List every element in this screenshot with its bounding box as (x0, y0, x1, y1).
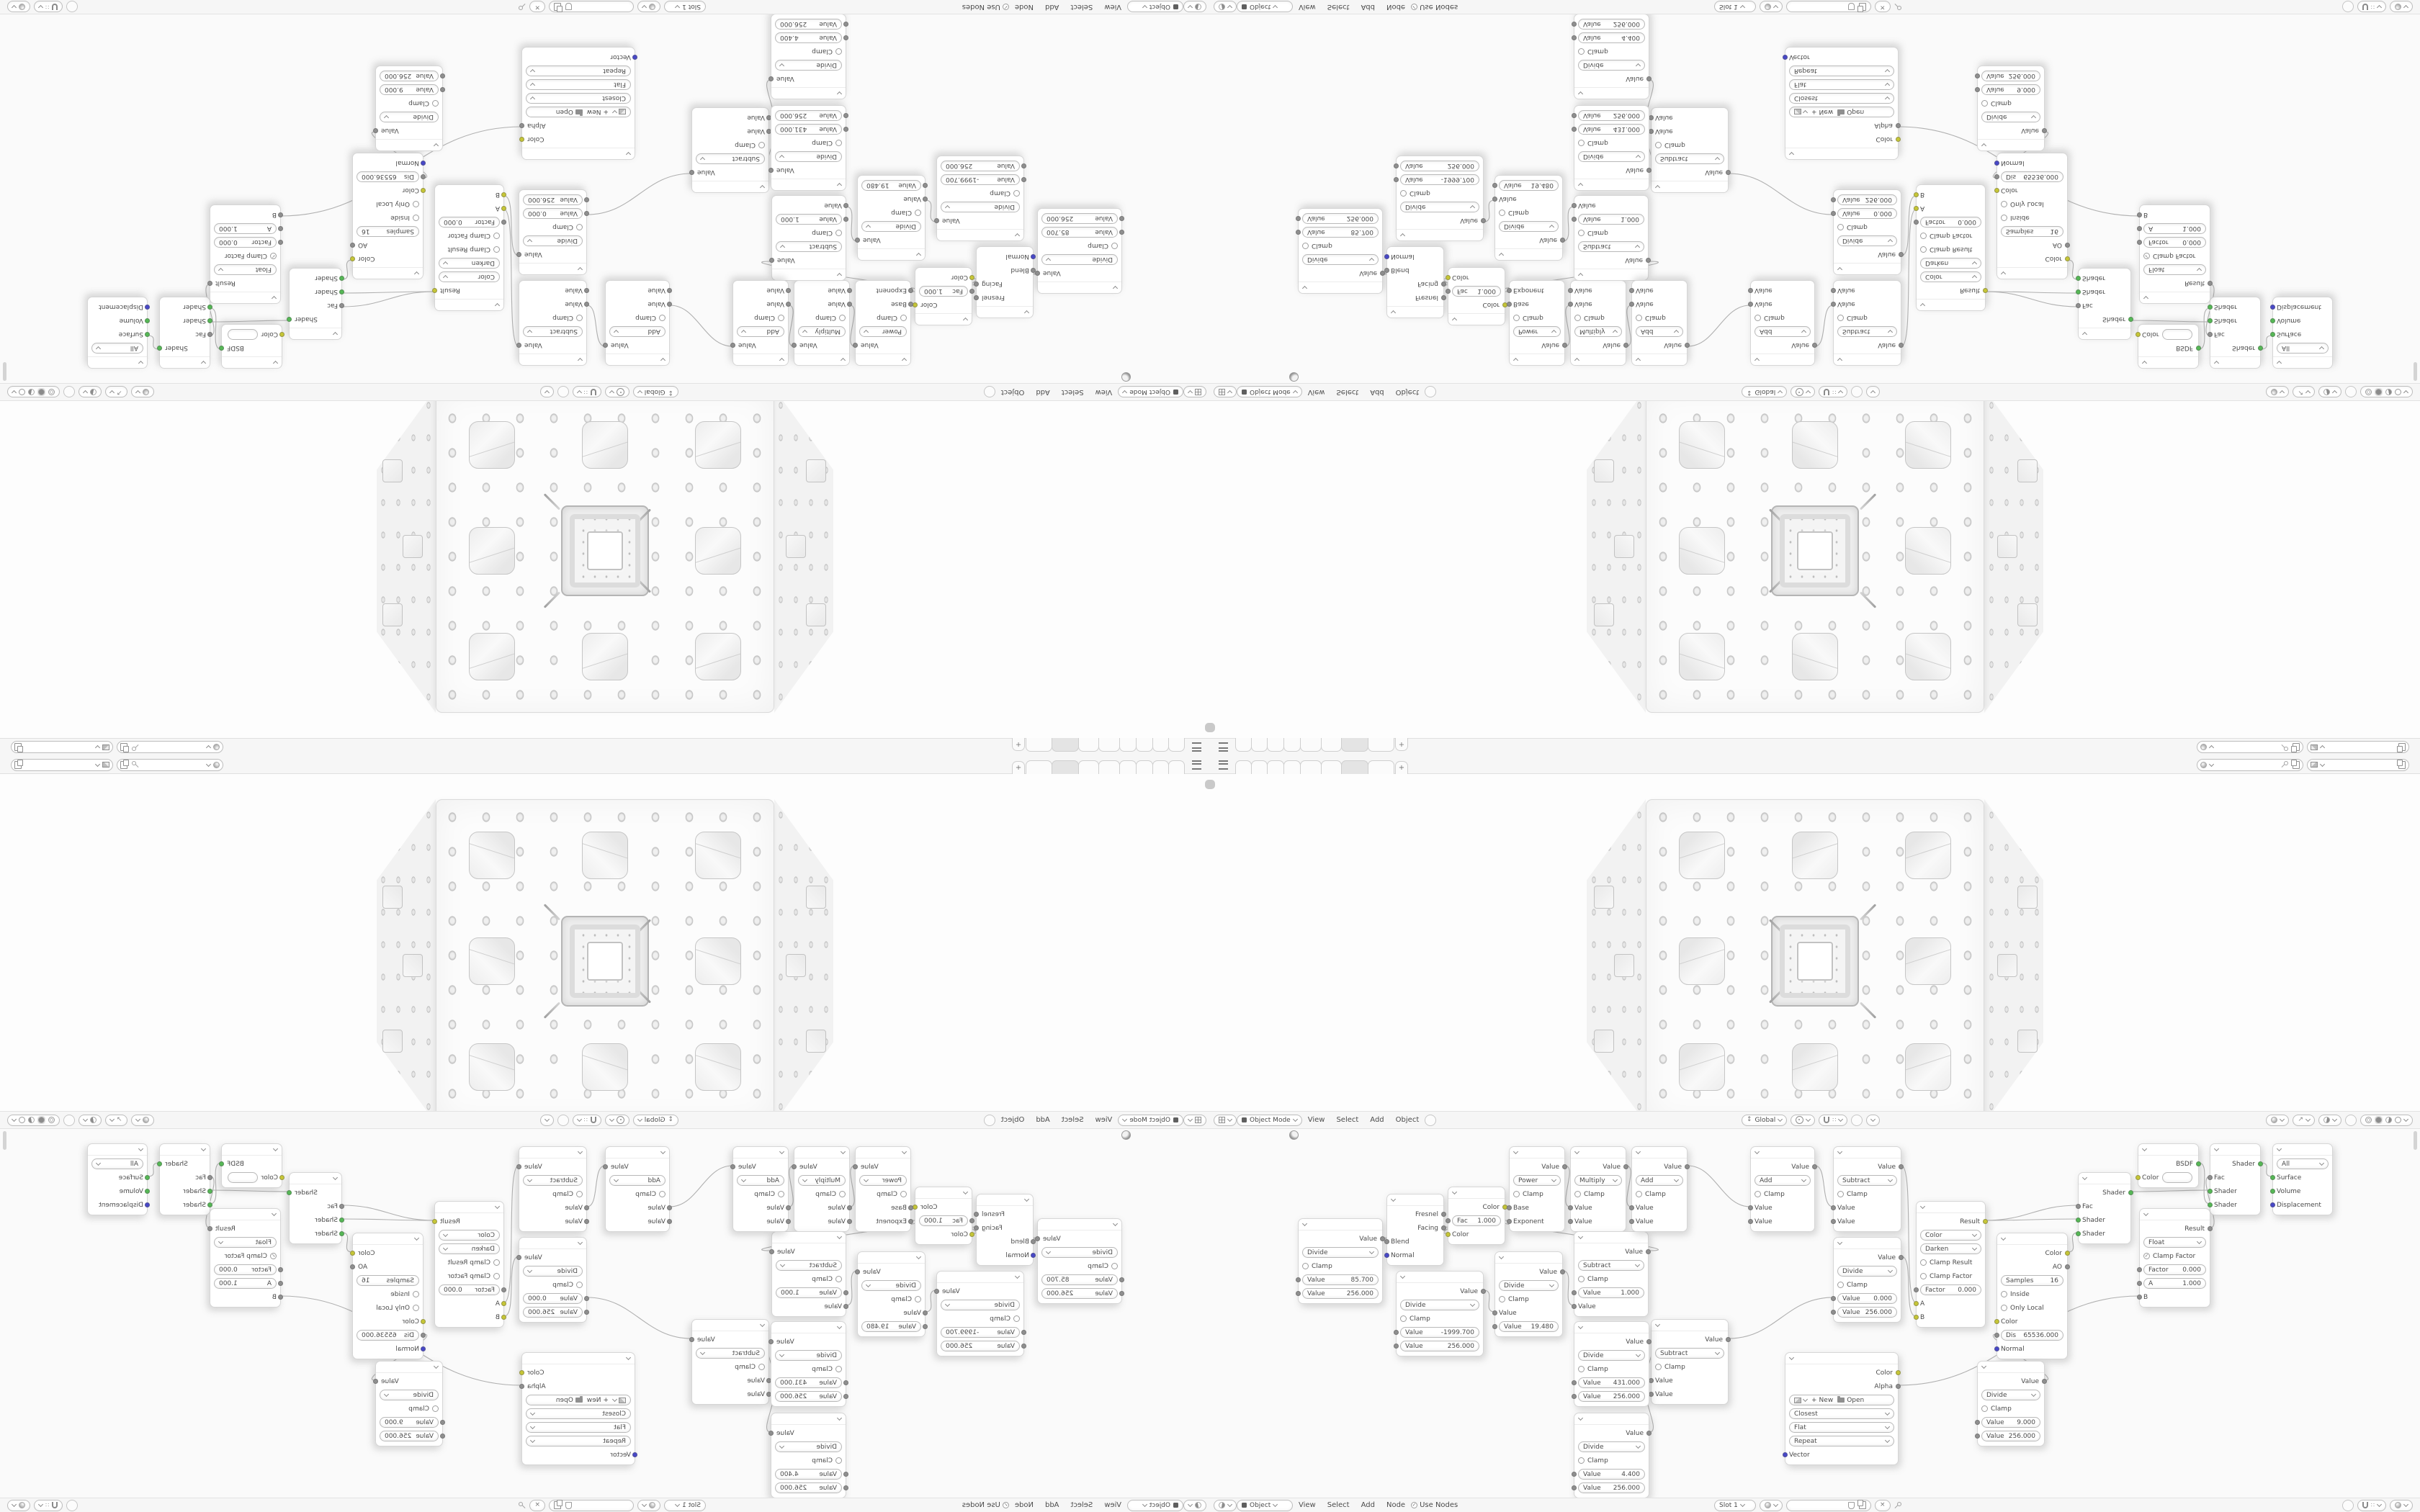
collapse-chevron-icon[interactable] (414, 1236, 419, 1241)
shader-socket[interactable] (339, 289, 344, 294)
collapse-chevron-icon[interactable] (1837, 1149, 1842, 1154)
node-header[interactable] (1299, 282, 1382, 293)
workspace-tab[interactable] (1098, 760, 1120, 774)
value-socket[interactable] (1035, 1236, 1040, 1241)
editor-type-dropdown[interactable] (1183, 1115, 1206, 1126)
value-socket[interactable] (768, 1339, 774, 1344)
node-header[interactable] (1834, 354, 1901, 365)
value-field[interactable]: Value-1999.700 (1400, 1327, 1479, 1338)
value-socket[interactable] (1492, 197, 1497, 202)
blend-socket[interactable] (1031, 1239, 1036, 1244)
editor-scrollbar[interactable] (2414, 362, 2417, 381)
menu-select[interactable]: Select (1056, 388, 1090, 396)
select-dropdown[interactable]: Subtract (776, 241, 842, 252)
clamp-factor-checkbox[interactable] (1920, 1273, 1927, 1279)
surface-socket[interactable] (2270, 1175, 2275, 1180)
select-dropdown[interactable]: Divide (775, 1441, 842, 1452)
select-dropdown[interactable]: Divide (1499, 221, 1559, 232)
select-dropdown[interactable]: Divide (775, 60, 842, 71)
value-socket[interactable] (2042, 128, 2047, 133)
select-dropdown[interactable]: Darken (1920, 258, 1981, 269)
select-dropdown[interactable]: Divide (1578, 1441, 1645, 1452)
node-header[interactable] (771, 87, 846, 99)
viewport-3d[interactable] (1210, 401, 2420, 738)
value-socket[interactable] (1492, 183, 1497, 188)
node-mix-shader[interactable]: ShaderFacShaderShader (159, 1143, 210, 1215)
value-field[interactable]: Value256.000 (1578, 1482, 1645, 1493)
copy-material-icon[interactable] (554, 1501, 561, 1509)
value-socket[interactable] (440, 1420, 445, 1425)
add-workspace-button[interactable]: + (1012, 761, 1025, 774)
select-dropdown[interactable]: Subtract (696, 1348, 765, 1359)
clamp-factor-checkbox[interactable]: ✓ (2143, 253, 2150, 259)
value-socket[interactable] (786, 1219, 791, 1224)
shading-rendered-icon[interactable] (19, 1117, 25, 1123)
select-dropdown[interactable]: Multiply (798, 326, 846, 337)
select-dropdown[interactable]: Repeat (526, 66, 631, 76)
node-header[interactable] (353, 267, 423, 279)
copy-material-icon[interactable] (554, 3, 561, 11)
color-socket[interactable] (969, 275, 974, 280)
fac-socket[interactable] (969, 289, 974, 294)
node-header[interactable] (210, 1209, 280, 1220)
node-mix-shader[interactable]: ShaderFacShaderShader (2210, 1143, 2261, 1215)
surface-socket[interactable] (2270, 332, 2275, 337)
vector-socket[interactable] (1783, 1452, 1788, 1457)
workspace-tab[interactable] (1235, 760, 1252, 774)
clamp-checkbox[interactable] (1013, 1315, 1020, 1322)
fac-socket[interactable] (339, 1204, 344, 1209)
collapse-chevron-icon[interactable] (1981, 1364, 1986, 1369)
collapse-chevron-icon[interactable] (1837, 267, 1842, 272)
value-field[interactable]: Value256.000 (1400, 1341, 1479, 1351)
value-socket[interactable] (1646, 168, 1652, 173)
select-dropdown[interactable]: Flat (526, 79, 631, 90)
new-layer-icon[interactable] (14, 761, 22, 769)
node-math-power[interactable]: ValuePowerClampBaseExponent (1509, 280, 1565, 366)
scene-selector[interactable] (117, 742, 223, 754)
clamp-checkbox[interactable] (1754, 1191, 1761, 1197)
collapse-chevron-icon[interactable] (1837, 358, 1842, 363)
unlink-button[interactable]: × (529, 1, 545, 13)
collapse-chevron-icon[interactable] (273, 361, 278, 366)
value-field[interactable]: Value1.000 (1578, 214, 1644, 225)
clamp-checkbox[interactable] (1302, 1263, 1309, 1269)
value-socket[interactable] (1649, 115, 1654, 120)
color-socket[interactable] (969, 1232, 974, 1237)
node-invert[interactable]: ColorFac1.000Color (915, 267, 972, 325)
toolbar-handle[interactable] (1205, 780, 1210, 789)
value-socket[interactable] (1685, 343, 1690, 348)
node-header[interactable] (1574, 269, 1648, 280)
ao-socket[interactable] (350, 1264, 355, 1269)
clamp-factor-checkbox[interactable]: ✓ (270, 1253, 277, 1259)
value-field[interactable]: Value256.000 (1837, 1307, 1897, 1318)
workspace-tab[interactable] (1052, 760, 1079, 774)
menu-select[interactable]: Select (1330, 388, 1364, 396)
fake-user-icon[interactable] (1848, 4, 1855, 11)
node-transparent-bsdf[interactable]: BSDFColor (2138, 1143, 2199, 1188)
select-dropdown[interactable]: Divide (1578, 60, 1645, 71)
workspace-tab[interactable] (1026, 760, 1052, 774)
value-field[interactable]: Value4.400 (1578, 1469, 1645, 1480)
select-dropdown[interactable]: Divide (1837, 235, 1897, 246)
toolbar-handle[interactable] (1210, 723, 1215, 732)
a-socket[interactable] (1914, 1301, 1919, 1306)
displacement-socket[interactable] (2270, 1202, 2275, 1207)
shading-wireframe-icon[interactable] (48, 1117, 55, 1123)
node-layer-weight[interactable]: FresnelFacingBlendNormal (1386, 1194, 1444, 1266)
select-dropdown[interactable]: Divide (380, 112, 439, 122)
collapse-chevron-icon[interactable] (1578, 183, 1583, 188)
node-math-subtract[interactable]: ValueSubtractClampValueValue (691, 107, 769, 193)
clamp-checkbox[interactable] (900, 1191, 907, 1197)
clamp-checkbox[interactable] (1574, 315, 1581, 321)
menu-node[interactable]: Node (1381, 1501, 1411, 1509)
color-swatch[interactable] (2162, 1172, 2192, 1183)
node-mix-float[interactable]: ResultFloat✓Clamp FactorFactor0.000A1.00… (210, 204, 281, 304)
shading-rendered-icon[interactable] (2395, 389, 2401, 395)
value-field[interactable]: Value0.000 (1837, 1293, 1897, 1304)
node-snap-dropdown[interactable]: ∷ (34, 1, 63, 13)
menu-object[interactable]: Object (995, 1116, 1031, 1124)
value-socket[interactable] (1646, 76, 1652, 81)
clamp-checkbox[interactable] (915, 1296, 921, 1302)
workspace-tab[interactable] (1078, 739, 1099, 752)
node-header[interactable] (1397, 1272, 1483, 1283)
node-math-divide[interactable]: ValueDivideClampValue431.000Value256.000 (1574, 105, 1649, 191)
node-math-add[interactable]: ValueAddClampValueValue (1750, 1146, 1815, 1232)
copy-material-icon[interactable] (1859, 3, 1866, 11)
scene-name-field[interactable] (142, 743, 204, 752)
select-dropdown[interactable]: Closest (526, 1408, 631, 1419)
volume-socket[interactable] (2270, 318, 2275, 323)
value-field[interactable]: Value9.000 (380, 84, 439, 95)
value-socket[interactable] (1649, 129, 1654, 134)
clamp-result-checkbox[interactable] (1920, 246, 1927, 253)
clamp-checkbox[interactable] (1655, 1364, 1662, 1370)
value-socket[interactable] (768, 168, 774, 173)
viewport-3d[interactable] (0, 774, 1210, 1111)
value-socket[interactable] (1394, 1330, 1399, 1335)
clamp-factor-checkbox[interactable]: ✓ (2143, 1253, 2150, 1259)
view-layer-selector[interactable] (2307, 742, 2409, 754)
clamp-checkbox[interactable] (1578, 140, 1585, 146)
value-field[interactable]: Value19.480 (1499, 180, 1559, 191)
node-header[interactable] (2140, 1209, 2210, 1220)
mode-dropdown[interactable]: Object Mode (1118, 387, 1183, 398)
collapse-chevron-icon[interactable] (578, 1149, 583, 1154)
scene-selector[interactable] (2197, 742, 2303, 754)
inside-checkbox[interactable] (413, 1291, 419, 1297)
value-socket[interactable] (667, 1219, 672, 1224)
a-socket[interactable] (278, 1281, 283, 1286)
color-socket[interactable] (913, 302, 918, 307)
value-socket[interactable] (1975, 1434, 1980, 1439)
select-dropdown[interactable]: Float (2143, 264, 2206, 275)
value-field[interactable]: Dis65536.000 (2001, 1330, 2063, 1341)
b-socket[interactable] (501, 1315, 506, 1320)
node-math-subtract[interactable]: ValueSubtractClampValueValue (1833, 280, 1901, 366)
value-socket[interactable] (440, 87, 445, 92)
material-name-field[interactable] (549, 1, 634, 13)
result-socket[interactable] (2208, 281, 2213, 286)
node-math-divide[interactable]: ValueDivideClampValue85.700Value256.000 (1037, 208, 1122, 294)
clamp-result-checkbox[interactable] (493, 246, 500, 253)
select-dropdown[interactable]: Flat (526, 1422, 631, 1433)
shader-socket[interactable] (2076, 1218, 2081, 1223)
value-field[interactable]: Value4.400 (1578, 32, 1645, 43)
node-header[interactable] (1997, 267, 2067, 279)
value-socket[interactable] (923, 1310, 928, 1315)
inside-checkbox[interactable] (2001, 1291, 2007, 1297)
shader-socket[interactable] (207, 1202, 212, 1207)
select-dropdown[interactable]: Add (609, 1175, 665, 1186)
value-socket[interactable] (1572, 113, 1577, 118)
node-header[interactable] (1299, 1219, 1382, 1230)
select-dropdown[interactable]: Subtract (523, 1175, 583, 1186)
new-scene-icon[interactable] (120, 744, 127, 752)
collapse-chevron-icon[interactable] (1400, 233, 1405, 238)
value-field[interactable]: Value-1999.700 (941, 1327, 1020, 1338)
node-math-subtract[interactable]: ValueSubtractClampValueValue (519, 1146, 587, 1232)
editor-type-dropdown[interactable] (1183, 1, 1206, 13)
node-ambient-occlusion[interactable]: ColorAOSamples16InsideOnly LocalColorDis… (1996, 153, 2068, 279)
color-socket[interactable] (519, 1370, 524, 1375)
pivot-point-dropdown[interactable] (1791, 1115, 1815, 1126)
select-dropdown[interactable]: Flat (1789, 79, 1894, 90)
toolbar-handle[interactable] (1210, 780, 1215, 789)
workspace-tab[interactable] (1026, 739, 1052, 752)
xray-dropdown[interactable] (2318, 1115, 2341, 1126)
shading-wireframe-icon[interactable] (2365, 1117, 2372, 1123)
workspace-tab[interactable] (1136, 760, 1153, 774)
view-layer-name-field[interactable] (26, 760, 93, 770)
value-socket[interactable] (843, 22, 848, 27)
value-socket[interactable] (792, 1164, 797, 1169)
value-socket[interactable] (1572, 22, 1577, 27)
render-preview-button[interactable] (63, 387, 75, 398)
collapse-chevron-icon[interactable] (272, 296, 277, 301)
collapse-chevron-icon[interactable] (2277, 361, 2282, 366)
value-socket[interactable] (786, 1205, 791, 1210)
value-socket[interactable] (847, 302, 852, 307)
view-layer-selector[interactable] (2307, 759, 2409, 771)
node-invert[interactable]: ColorFac1.000Color (1448, 267, 1505, 325)
collapse-chevron-icon[interactable] (2082, 1175, 2087, 1180)
node-header[interactable] (1510, 354, 1564, 365)
workspace-tab[interactable] (1078, 760, 1099, 774)
proportional-falloff-dropdown[interactable] (540, 387, 554, 398)
node-material-output[interactable]: AllSurfaceVolumeDisplacement (87, 1143, 148, 1215)
select-dropdown[interactable]: Float (214, 1237, 277, 1248)
node-math-power[interactable]: ValuePowerClampBaseExponent (855, 1146, 911, 1232)
new-image-button[interactable]: New (1819, 1397, 1834, 1404)
viewport-3d[interactable] (1210, 774, 2420, 1111)
add-workspace-button[interactable]: + (1012, 739, 1025, 752)
collapse-chevron-icon[interactable] (434, 1364, 439, 1369)
node-header[interactable] (2273, 1144, 2332, 1156)
value-socket[interactable] (1119, 1291, 1124, 1296)
node-header[interactable] (1978, 1362, 2044, 1373)
select-dropdown[interactable]: Color (1920, 1230, 1981, 1241)
menu-object[interactable]: Object (1390, 1116, 1425, 1124)
collapse-chevron-icon[interactable] (2001, 1236, 2006, 1241)
shader-type-dropdown[interactable]: Object (1127, 1, 1183, 13)
collapse-chevron-icon[interactable] (626, 1355, 631, 1360)
fac-socket[interactable] (2208, 1175, 2213, 1180)
node-header[interactable] (2138, 1144, 2198, 1156)
node-header[interactable] (858, 1252, 925, 1264)
ao-socket[interactable] (2065, 1264, 2070, 1269)
node-header[interactable] (210, 292, 280, 303)
value-socket[interactable] (1899, 343, 1904, 348)
value-socket[interactable] (843, 1304, 848, 1309)
node-ambient-occlusion[interactable]: ColorAOSamples16InsideOnly LocalColorDis… (352, 153, 423, 279)
value-field[interactable]: Value256.000 (775, 1391, 842, 1402)
node-header[interactable] (771, 1413, 846, 1425)
value-field[interactable]: Factor0.000 (1920, 1284, 1981, 1295)
new-scene-icon[interactable] (2293, 761, 2300, 769)
select-dropdown[interactable]: Add (737, 326, 784, 337)
fake-user-icon[interactable] (565, 1502, 572, 1509)
select-dropdown[interactable]: Divide (1302, 1247, 1379, 1258)
value-field[interactable]: Value256.000 (775, 1482, 842, 1493)
exponent-socket[interactable] (1507, 288, 1512, 293)
shading-solid-active[interactable] (37, 388, 45, 396)
value-field[interactable]: Value256.000 (1981, 71, 2040, 81)
view-layer-name-field[interactable] (2327, 760, 2394, 770)
select-dropdown[interactable]: All (2277, 343, 2329, 354)
factor-socket[interactable] (278, 240, 283, 245)
factor-socket[interactable] (501, 220, 506, 225)
node-mix-color[interactable]: ResultColorDarkenClamp ResultClamp Facto… (1916, 1201, 1986, 1328)
collapse-chevron-icon[interactable] (1754, 358, 1760, 363)
workspace-tab[interactable] (1283, 739, 1301, 752)
node-header[interactable] (794, 354, 849, 365)
value-socket[interactable] (689, 170, 694, 175)
collapse-chevron-icon[interactable] (2143, 1211, 2148, 1216)
collapse-chevron-icon[interactable] (1513, 1149, 1518, 1154)
value-socket[interactable] (847, 1205, 852, 1210)
value-field[interactable]: Value85.700 (1041, 1274, 1118, 1285)
normal-socket[interactable] (1994, 1346, 1999, 1351)
node-image-texture[interactable]: ColorAlpha+NewOpenClosestFlatRepeatVecto… (1785, 1352, 1899, 1465)
menu-node[interactable]: Node (1009, 1501, 1039, 1509)
select-dropdown[interactable]: Repeat (526, 1436, 631, 1446)
value-socket[interactable] (1481, 218, 1486, 223)
show-overlays-dropdown[interactable] (2266, 387, 2289, 398)
node-layer-weight[interactable]: FresnelFacingBlendNormal (976, 1194, 1034, 1266)
value-socket[interactable] (1831, 302, 1836, 307)
node-header[interactable] (1038, 1219, 1121, 1230)
collapse-chevron-icon[interactable] (272, 1211, 277, 1216)
exponent-socket[interactable] (908, 1219, 913, 1224)
node-invert[interactable]: ColorFac1.000Color (1448, 1187, 1505, 1245)
snap-toggle-button[interactable] (66, 1, 78, 13)
dis-socket[interactable] (421, 1333, 426, 1338)
value-socket[interactable] (792, 343, 797, 348)
value-socket[interactable] (853, 343, 858, 348)
clamp-checkbox[interactable] (1837, 224, 1844, 230)
base-socket[interactable] (908, 1205, 913, 1210)
workspace-tab[interactable] (1168, 739, 1185, 752)
snap-toggle-button[interactable] (66, 1500, 78, 1511)
clamp-checkbox[interactable] (1837, 315, 1844, 321)
render-preview-button[interactable] (2345, 1115, 2357, 1126)
value-socket[interactable] (843, 203, 848, 208)
color-swatch[interactable] (228, 329, 259, 340)
value-socket[interactable] (843, 1485, 848, 1490)
value-socket[interactable] (1119, 230, 1124, 235)
volume-socket[interactable] (2270, 1189, 2275, 1194)
value-socket[interactable] (855, 238, 860, 243)
node-layer-weight[interactable]: FresnelFacingBlendNormal (976, 246, 1034, 318)
fac-socket[interactable] (969, 1218, 974, 1223)
value-socket[interactable] (1572, 203, 1577, 208)
collapse-chevron-icon[interactable] (1920, 303, 1925, 308)
value-field[interactable]: Value9.000 (1981, 1417, 2040, 1428)
fac-socket[interactable] (2076, 303, 2081, 308)
value-socket[interactable] (516, 1164, 521, 1169)
collapse-chevron-icon[interactable] (273, 1146, 278, 1151)
workspace-tab[interactable] (1341, 760, 1368, 774)
proportional-edit-button[interactable] (557, 387, 569, 398)
facing-socket[interactable] (1441, 1225, 1446, 1230)
collapse-chevron-icon[interactable] (578, 267, 583, 272)
clamp-checkbox[interactable] (1499, 1296, 1505, 1302)
snap-dropdown[interactable]: ∷ (1819, 387, 1847, 398)
collapse-chevron-icon[interactable] (916, 253, 921, 258)
new-layer-icon[interactable] (2398, 744, 2406, 752)
node-header[interactable] (160, 1144, 210, 1156)
fresnel-socket[interactable] (1441, 295, 1446, 300)
color-socket[interactable] (421, 188, 426, 193)
collapse-chevron-icon[interactable] (2277, 1146, 2282, 1151)
value-socket[interactable] (1572, 35, 1577, 40)
workspace-tab[interactable] (1136, 739, 1153, 752)
node-header[interactable] (2210, 356, 2260, 368)
value-socket[interactable] (1685, 1164, 1690, 1169)
node-header[interactable] (937, 1272, 1023, 1283)
clamp-checkbox[interactable] (835, 1457, 842, 1464)
material-name-field[interactable] (549, 1500, 634, 1511)
value-field[interactable]: Value256.000 (1837, 194, 1897, 205)
collapse-chevron-icon[interactable] (963, 1189, 968, 1194)
node-header[interactable] (376, 139, 442, 150)
value-field[interactable]: Factor0.000 (2143, 237, 2206, 248)
result-socket[interactable] (432, 1219, 437, 1224)
collapse-chevron-icon[interactable] (902, 1149, 907, 1154)
value-socket[interactable] (667, 1205, 672, 1210)
bsdf-socket[interactable] (219, 346, 224, 351)
alpha-socket[interactable] (1896, 1384, 1901, 1389)
value-field[interactable]: Samples16 (357, 1275, 419, 1286)
fresnel-socket[interactable] (1441, 1212, 1446, 1217)
node-math-divide[interactable]: ValueDivideClampValue9.000Value256.000 (1977, 1361, 2045, 1446)
select-dropdown[interactable]: Multiply (798, 1175, 846, 1186)
editor-type-dropdown[interactable] (1183, 387, 1206, 398)
b-socket[interactable] (2137, 212, 2142, 217)
editor-scrollbar[interactable] (3, 362, 6, 381)
menu-add[interactable]: Add (1039, 3, 1065, 11)
a-socket[interactable] (2137, 226, 2142, 231)
color-socket[interactable] (1994, 1319, 1999, 1324)
color-socket[interactable] (2065, 256, 2070, 261)
proportional-edit-button[interactable] (1851, 1115, 1863, 1126)
node-header[interactable] (915, 313, 972, 325)
select-dropdown[interactable]: Subtract (1837, 1175, 1897, 1186)
